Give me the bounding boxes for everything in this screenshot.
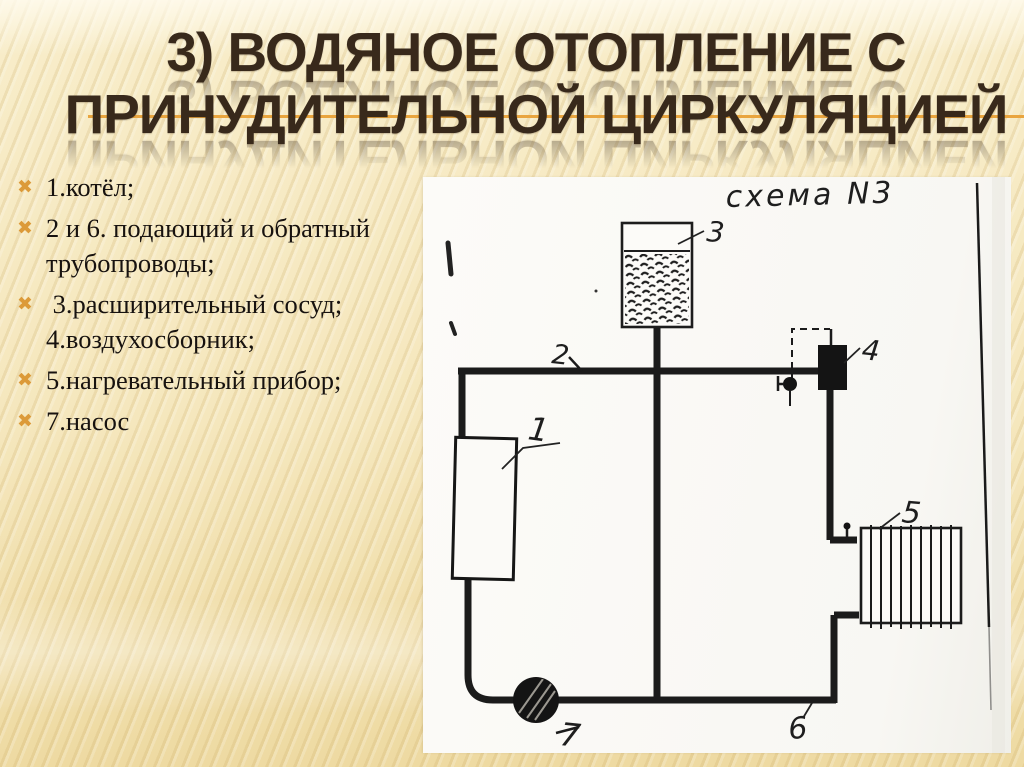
scan-speck xyxy=(595,290,598,293)
scan-border-line-faint xyxy=(989,627,991,710)
scan-smudges xyxy=(448,243,455,334)
bullet-x-icon: ✖ xyxy=(4,287,46,322)
radiator-supply-pipe xyxy=(830,388,857,540)
sheet-title: схема N3 xyxy=(725,177,895,215)
pump xyxy=(513,677,559,723)
boiler-outlet-pipe xyxy=(468,577,517,700)
slide-title-line2: ПРИНУДИТЕЛЬНОЙ ЦИРКУЛЯЦИЕЙ xyxy=(48,84,1024,146)
paper-edge-shading xyxy=(992,177,1005,753)
water-scribble-fill xyxy=(625,254,689,324)
bullet-x-icon: ✖ xyxy=(4,170,46,205)
list-item: ✖ 5.нагревательный прибор; xyxy=(4,363,420,398)
slide: 3) ВОДЯНОЕ ОТОПЛЕНИЕ С ПРИНУДИТЕЛЬНОЙ ЦИ… xyxy=(0,0,1024,767)
radiator xyxy=(861,525,961,629)
air-collector xyxy=(818,345,847,390)
boiler xyxy=(452,437,516,579)
slide-title: 3) ВОДЯНОЕ ОТОПЛЕНИЕ С ПРИНУДИТЕЛЬНОЙ ЦИ… xyxy=(48,22,1024,145)
legend-item-text: 2 и 6. подающий и обратный трубопроводы; xyxy=(46,211,420,281)
label-pump: 7 xyxy=(558,715,583,753)
label-leader-5 xyxy=(879,513,900,529)
bullet-x-icon: ✖ xyxy=(4,363,46,398)
scanned-diagram-sheet: схема N3 3 1 xyxy=(423,177,1011,753)
label-supply-pipe: 2 xyxy=(550,339,570,372)
slide-title-line1: 3) ВОДЯНОЕ ОТОПЛЕНИЕ С xyxy=(48,22,1024,84)
label-return-pipe: 6 xyxy=(787,711,808,747)
legend-item-text: 1.котёл; xyxy=(46,170,134,205)
label-boiler: 1 xyxy=(526,409,551,449)
list-item: ✖ 1.котёл; xyxy=(4,170,420,205)
list-item: ✖ 7.насос xyxy=(4,404,420,439)
heating-scheme-diagram: схема N3 3 1 xyxy=(423,177,1011,753)
legend-item-text: 3.расширительный сосуд; 4.воздухосборник… xyxy=(46,287,420,357)
list-item: ✖ 3.расширительный сосуд; 4.воздухосборн… xyxy=(4,287,420,357)
pipes xyxy=(458,326,859,703)
label-radiator: 5 xyxy=(900,495,922,532)
label-air-collector: 4 xyxy=(860,333,881,368)
air-vent-valve xyxy=(777,376,797,406)
radiator-return-pipe xyxy=(834,615,859,703)
list-item: ✖ 2 и 6. подающий и обратный трубопровод… xyxy=(4,211,420,281)
legend-list: ✖ 1.котёл; ✖ 2 и 6. подающий и обратный … xyxy=(4,170,420,445)
expansion-vessel xyxy=(622,223,692,327)
label-expansion-vessel: 3 xyxy=(706,215,726,249)
bullet-x-icon: ✖ xyxy=(4,211,46,246)
bullet-x-icon: ✖ xyxy=(4,404,46,439)
scan-border-line xyxy=(977,183,989,627)
legend-item-text: 7.насос xyxy=(46,404,129,439)
legend-item-text: 5.нагревательный прибор; xyxy=(46,363,341,398)
